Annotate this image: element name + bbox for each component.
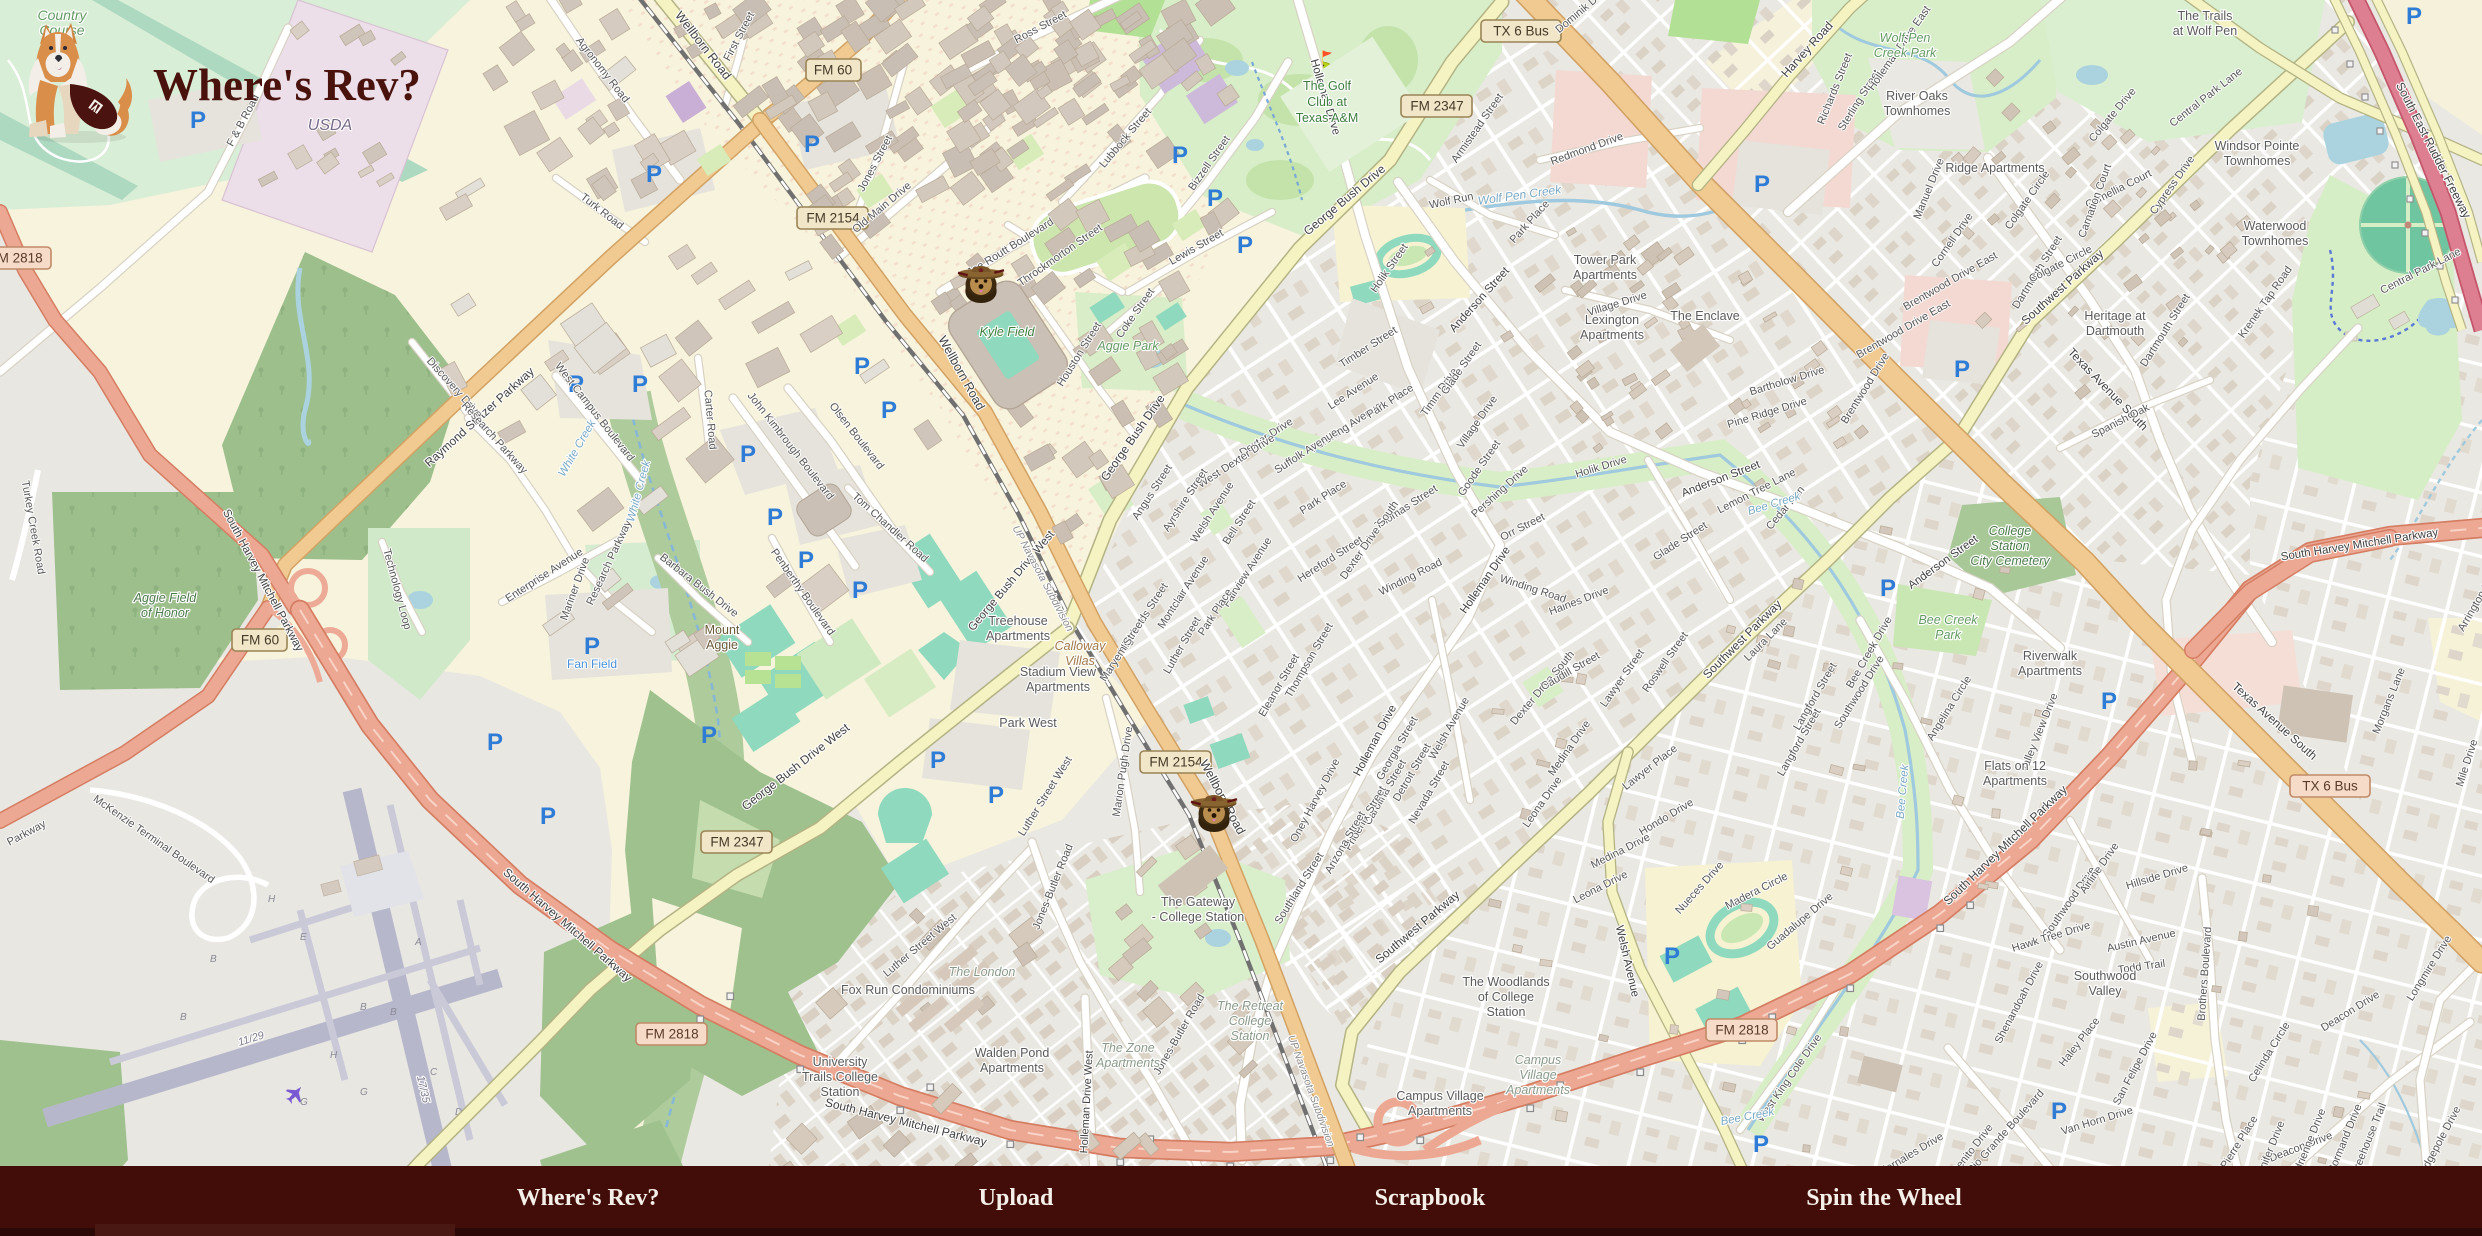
svg-text:Fan Field: Fan Field [567, 657, 617, 671]
svg-text:WaterwoodTownhomes: WaterwoodTownhomes [2242, 219, 2309, 248]
svg-text:P: P [632, 371, 648, 398]
svg-text:The Gateway- College Station: The Gateway- College Station [1152, 895, 1244, 924]
svg-text:LexingtonApartments: LexingtonApartments [1580, 313, 1644, 342]
svg-text:FM 60: FM 60 [814, 63, 852, 78]
svg-text:P: P [852, 577, 868, 604]
svg-text:Spin the Wheel: Spin the Wheel [1806, 1185, 1962, 1211]
svg-text:Wolf PenCreek Park: Wolf PenCreek Park [1874, 31, 1937, 60]
svg-text:Aggie Fieldof Honor: Aggie Fieldof Honor [133, 591, 198, 620]
svg-text:P: P [2406, 3, 2422, 30]
svg-text:Fox Run Condominiums: Fox Run Condominiums [841, 983, 975, 997]
svg-text:Aggie Park: Aggie Park [1096, 339, 1159, 353]
svg-text:P: P [1753, 1131, 1769, 1158]
svg-text:FM 2347: FM 2347 [710, 835, 763, 850]
svg-text:The London: The London [949, 965, 1016, 979]
svg-text:FM 2154: FM 2154 [806, 211, 860, 226]
svg-text:Kyle Field: Kyle Field [980, 325, 1036, 339]
svg-text:Where's Rev?: Where's Rev? [517, 1185, 660, 1211]
svg-text:E: E [300, 932, 307, 943]
svg-text:P: P [646, 161, 662, 188]
svg-text:P: P [487, 729, 503, 756]
svg-text:TX 6 Bus: TX 6 Bus [1493, 24, 1549, 39]
svg-text:P: P [584, 633, 600, 660]
svg-text:Scrapbook: Scrapbook [1375, 1185, 1486, 1211]
svg-text:P: P [881, 397, 897, 424]
svg-text:River OaksTownhomes: River OaksTownhomes [1884, 89, 1951, 118]
svg-text:P: P [701, 722, 717, 749]
svg-text:The Trailsat Wolf Pen: The Trailsat Wolf Pen [2173, 9, 2237, 38]
svg-text:P: P [767, 504, 783, 531]
svg-text:FM 60: FM 60 [241, 633, 279, 648]
svg-text:The ZoneApartments: The ZoneApartments [1095, 1041, 1160, 1070]
svg-text:The Enclave: The Enclave [1670, 309, 1740, 323]
svg-text:P: P [2051, 1098, 2067, 1125]
svg-text:P: P [804, 131, 820, 158]
svg-text:P: P [1172, 142, 1188, 169]
svg-text:FM 2818: FM 2818 [0, 251, 43, 266]
svg-text:P: P [1237, 232, 1253, 259]
svg-text:G: G [300, 1097, 308, 1108]
svg-text:P: P [1664, 943, 1680, 970]
svg-text:C: C [430, 1067, 438, 1078]
svg-text:TX 6 Bus: TX 6 Bus [2302, 779, 2358, 794]
svg-text:P: P [1880, 575, 1896, 602]
svg-text:Upload: Upload [979, 1185, 1054, 1211]
svg-text:Flats on 12Apartments: Flats on 12Apartments [1983, 759, 2047, 788]
svg-text:P: P [740, 441, 756, 468]
svg-text:H: H [268, 894, 276, 905]
svg-text:P: P [2101, 688, 2117, 715]
svg-text:P: P [988, 782, 1004, 809]
svg-text:B: B [360, 1002, 367, 1013]
svg-text:G: G [360, 1087, 368, 1098]
svg-text:B: B [180, 1012, 187, 1023]
svg-text:TreehouseApartments: TreehouseApartments [986, 614, 1050, 643]
svg-text:P: P [1207, 185, 1223, 212]
svg-text:P: P [540, 803, 556, 830]
svg-text:P: P [930, 747, 946, 774]
svg-text:H: H [330, 1050, 338, 1061]
svg-text:A: A [414, 937, 422, 948]
svg-text:Where's Rev?: Where's Rev? [153, 60, 421, 110]
svg-text:FM 2818: FM 2818 [1715, 1023, 1768, 1038]
svg-text:Ridge Apartments: Ridge Apartments [1945, 161, 2044, 175]
svg-text:B: B [390, 1007, 397, 1018]
svg-text:RiverwalkApartments: RiverwalkApartments [2018, 649, 2082, 678]
svg-text:Stadium ViewApartments: Stadium ViewApartments [1020, 665, 1097, 694]
svg-text:FM 2347: FM 2347 [1410, 99, 1463, 114]
svg-text:USDA: USDA [308, 117, 352, 134]
svg-text:P: P [1754, 171, 1770, 198]
svg-text:P: P [798, 547, 814, 574]
svg-text:P: P [1954, 356, 1970, 383]
svg-text:FM 2818: FM 2818 [645, 1027, 698, 1042]
svg-text:P: P [854, 353, 870, 380]
svg-text:B: B [210, 954, 217, 965]
svg-text:Tower ParkApartments: Tower ParkApartments [1573, 253, 1637, 282]
svg-text:Heritage atDartmouth: Heritage atDartmouth [2084, 309, 2146, 338]
svg-text:Walden PondApartments: Walden PondApartments [975, 1046, 1050, 1075]
svg-text:Campus VillageApartments: Campus VillageApartments [1396, 1089, 1483, 1118]
svg-text:FM 2154: FM 2154 [1149, 755, 1203, 770]
svg-text:P: P [190, 107, 206, 134]
svg-text:Windsor PointeTownhomes: Windsor PointeTownhomes [2215, 139, 2300, 168]
svg-text:Park West: Park West [999, 716, 1057, 730]
svg-text:MountAggie: MountAggie [705, 623, 740, 652]
